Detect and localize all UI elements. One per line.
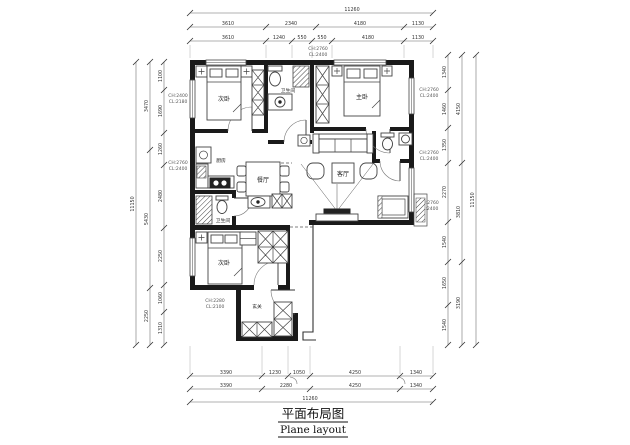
shower-icon [293,66,309,87]
dim-label: 5430 [144,213,150,225]
dim-label: 1690 [158,105,164,117]
bath2-fixtures: 卫生间 [196,196,230,224]
dim-label: 3190 [456,297,462,309]
room-label-foyer: 玄关 [252,303,262,310]
annotation-text: CL:2400 [420,93,439,99]
dim-label: 11150 [130,196,136,211]
dim-label: 11260 [302,396,317,402]
dim-label: 1650 [442,277,448,289]
foyer-furniture: 玄关 [242,302,292,337]
armchair-icon [307,163,324,179]
toilet-icon [268,66,282,71]
kitchen-furniture: 厨房 [196,147,234,188]
dim-label: 1340 [410,383,422,389]
annotation-text: CH:2760 [419,87,439,93]
room-label-bedroom2: 次卧 [218,259,230,267]
dim-label: 1260 [158,143,164,155]
tv-stand-icon [316,214,358,221]
room-label-bath1: 卫生间 [281,87,296,94]
fridge-icon [196,147,211,163]
annotation-text: CL:2400 [309,52,328,58]
dim-label: 1350 [442,139,448,151]
dim-label: 3390 [220,383,232,389]
dim-label: 1460 [442,103,448,115]
dim-label: 4180 [354,21,366,27]
bedroom1-furniture: 次卧 [196,66,264,120]
dim-label: 2250 [144,310,150,322]
bedroom2-furniture: 次卧 [196,231,288,284]
annotation-text: CH:2400 [168,93,188,99]
sofa-icon [313,134,373,153]
dim-label: 4180 [362,35,374,41]
dining-furniture: 餐厅 [237,162,292,208]
dim-label: 1340 [442,66,448,78]
drawing-title-cn: 平面布局图 [282,406,345,421]
drawing-title-en: Plane layout [280,424,347,436]
dim-label: 2480 [158,190,164,202]
dimension-chain-right: 1340 1460 1350 2270 1540 1650 1540 4150 … [442,52,479,348]
dim-label: 1240 [273,35,285,41]
dim-label: 2340 [285,21,297,27]
dim-label: 2280 [280,383,292,389]
dim-label: 1050 [293,370,305,376]
annotation-text: CL:2400 [169,166,188,172]
dim-label: 1130 [412,35,424,41]
armchair-icon [360,163,377,179]
dim-label: 4250 [349,370,361,376]
floor-plan-sheet: 11260 3610 2340 4180 1130 3610 1240 550 … [0,0,630,445]
dim-label: 1310 [158,322,164,334]
room-label-kitchen: 厨房 [216,157,226,164]
toilet-icon [381,133,394,137]
dim-label: 3810 [456,206,462,218]
tv-icon [324,209,350,213]
building-outline [303,225,316,340]
dimension-chain-bottom: 3390 1230 1050 4250 1340 3390 2280 4250 … [187,346,436,405]
dim-label: 1540 [442,236,448,248]
toilet-icon [216,196,228,200]
room-label-master: 主卧 [356,93,368,101]
dim-label: 550 [317,35,326,41]
dim-label: 2270 [442,186,448,198]
dim-label: 1100 [158,70,164,82]
dim-label: 3470 [144,100,150,112]
dim-label: 11260 [344,7,359,13]
side-table-icon [298,135,310,146]
dim-label: 1540 [442,319,448,331]
floor-plan-drawing: 11260 3610 2340 4180 1130 3610 1240 550 … [0,0,630,445]
annotation-text: CH:2760 [308,46,328,52]
dim-label: 1340 [410,370,422,376]
dim-label: 4250 [349,383,361,389]
dim-label: 3390 [220,370,232,376]
title-block: 平面布局图 Plane layout [278,406,348,437]
dim-label: 3610 [222,35,234,41]
dim-label: 4150 [456,103,462,115]
wc-fixtures [381,133,412,150]
annotation-text: CH:2280 [205,298,225,304]
annotation-text: CL:2100 [206,304,225,310]
room-label-living: 客厅 [337,170,349,178]
dim-label: 550 [297,35,306,41]
dim-label: 1230 [269,370,281,376]
stove-icon [210,178,230,188]
annotation-text: CL:2180 [169,99,188,105]
balcony-cabinet-icon [378,196,408,218]
annotation-text: CH:2760 [168,160,188,166]
room-label-dining: 餐厅 [257,176,269,184]
dim-label: 1130 [412,21,424,27]
room-label-bedroom1: 次卧 [218,95,230,103]
dim-label: 3610 [222,21,234,27]
room-label-bath2: 卫生间 [216,217,231,224]
ac-platform-icon [414,194,427,226]
annotation-text: CL:2400 [420,156,439,162]
dim-label: 11150 [470,192,476,207]
dim-label: 2250 [158,250,164,262]
sink-icon [197,166,206,178]
dim-label: 1060 [158,292,164,304]
bath1-fixtures: 卫生间 [268,66,309,110]
master-bedroom-furniture: 主卧 [316,66,392,123]
annotation-text: CH:2760 [419,150,439,156]
dimension-chain-left: 11150 3470 5430 2250 1100 1690 1260 2480… [130,59,167,348]
shower-icon [196,196,212,224]
